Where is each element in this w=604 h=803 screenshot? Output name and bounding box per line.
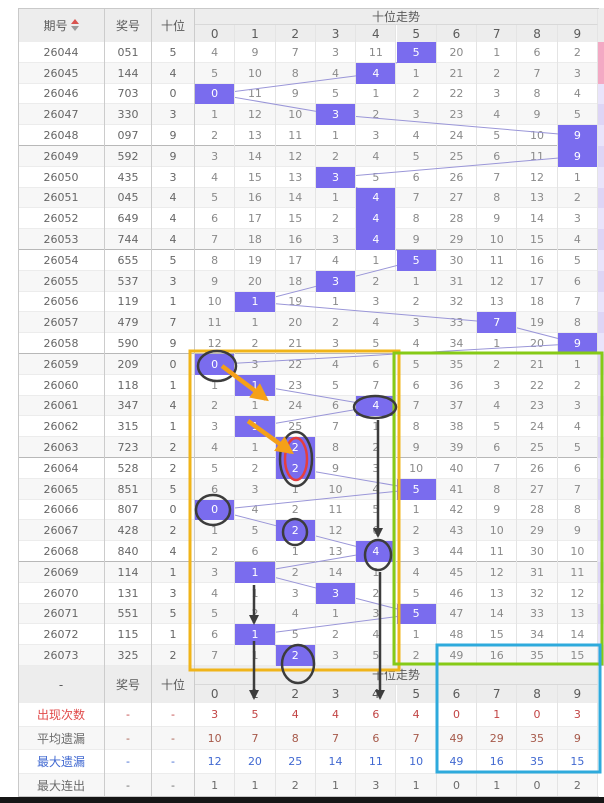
tens-cell: 0 [152, 354, 195, 375]
table-edge-sliver [598, 167, 604, 188]
miss-cell-5: 2 [397, 292, 437, 313]
period-cell: 26056 [18, 292, 105, 313]
miss-cell-6: 39 [437, 437, 477, 458]
miss-cell-1: 2 [235, 333, 275, 354]
miss-cell-8: 10 [517, 125, 557, 146]
miss-cell-3: 1 [316, 292, 356, 313]
miss-cell-4: 7 [356, 375, 396, 396]
table-edge-sliver [598, 146, 604, 167]
miss-cell-7: 12 [477, 271, 517, 292]
miss-cell-3: 3 [316, 229, 356, 250]
prize-cell: 144 [105, 63, 152, 84]
digit-header-7: 7 [477, 25, 517, 42]
table-edge-sliver [598, 125, 604, 146]
miss-cell-5: 3 [397, 104, 437, 125]
table-edge-sliver [598, 583, 604, 604]
table-edge-sliver [598, 63, 604, 84]
miss-cell-9: 3 [558, 396, 598, 417]
miss-cell-2: 17 [276, 250, 316, 271]
miss-cell-6: 34 [437, 333, 477, 354]
miss-cell-1: 19 [235, 250, 275, 271]
hit-cell-4: 4 [356, 63, 396, 84]
sort-icon[interactable] [71, 19, 79, 31]
digit-header-2: 2 [276, 25, 316, 42]
miss-cell-6: 28 [437, 208, 477, 229]
digit-header-7: 7 [477, 685, 517, 704]
period-cell: 26072 [18, 624, 105, 645]
sort-asc-icon [71, 19, 79, 24]
summary-label: 最大连出 [18, 774, 105, 798]
tens-cell: 3 [152, 104, 195, 125]
miss-cell-8: 14 [517, 208, 557, 229]
digit-header-0: 0 [195, 25, 235, 42]
tens-cell: 3 [152, 271, 195, 292]
trend-row-26053: 260537444718163492910154 [18, 229, 598, 250]
miss-cell-9: 6 [558, 458, 598, 479]
miss-cell-3: 1 [316, 188, 356, 209]
prize-cell: 655 [105, 250, 152, 271]
hit-cell-3: 3 [316, 167, 356, 188]
hit-cell-9: 9 [558, 125, 598, 146]
miss-cell-1: 2 [235, 458, 275, 479]
miss-cell-1: 3 [235, 479, 275, 500]
miss-cell-9: 11 [558, 562, 598, 583]
prize-cell: 315 [105, 416, 152, 437]
miss-cell-8: 7 [517, 63, 557, 84]
hit-cell-5: 5 [397, 250, 437, 271]
period-cell: 26069 [18, 562, 105, 583]
summary-value-7: 1 [477, 774, 517, 798]
miss-cell-8: 9 [517, 104, 557, 125]
miss-cell-9: 9 [558, 520, 598, 541]
table-edge-sliver [598, 500, 604, 521]
miss-cell-2: 21 [276, 333, 316, 354]
miss-cell-0: 4 [195, 437, 235, 458]
miss-cell-6: 46 [437, 583, 477, 604]
table-edge-sliver [598, 645, 604, 666]
table-edge-sliver [598, 42, 604, 63]
miss-cell-3: 4 [316, 250, 356, 271]
tens-cell: 4 [152, 396, 195, 417]
period-cell: 26044 [18, 42, 105, 63]
hit-cell-2: 2 [276, 645, 316, 666]
miss-cell-1: 9 [235, 42, 275, 63]
miss-cell-5: 1 [397, 63, 437, 84]
miss-cell-4: 1 [356, 562, 396, 583]
miss-cell-6: 27 [437, 188, 477, 209]
miss-cell-1: 11 [235, 84, 275, 105]
tens-cell: 2 [152, 458, 195, 479]
table-edge-sliver [598, 624, 604, 645]
summary-value-9: 3 [558, 703, 598, 727]
miss-cell-8: 28 [517, 500, 557, 521]
period-header-label: 期号 [43, 17, 67, 34]
miss-cell-6: 32 [437, 292, 477, 313]
miss-cell-7: 6 [477, 437, 517, 458]
miss-cell-3: 5 [316, 375, 356, 396]
hit-cell-2: 2 [276, 458, 316, 479]
miss-cell-2: 2 [276, 562, 316, 583]
miss-cell-5: 6 [397, 167, 437, 188]
table-edge-sliver-header [598, 8, 604, 42]
period-cell: 26046 [18, 84, 105, 105]
miss-cell-8: 25 [517, 437, 557, 458]
miss-cell-8: 33 [517, 604, 557, 625]
miss-cell-8: 12 [517, 167, 557, 188]
miss-cell-0: 1 [195, 520, 235, 541]
hit-cell-1: 1 [235, 416, 275, 437]
prize-header: 奖号 [105, 8, 152, 42]
miss-cell-0: 4 [195, 42, 235, 63]
prize-cell: 537 [105, 271, 152, 292]
miss-cell-6: 31 [437, 271, 477, 292]
miss-cell-8: 20 [517, 333, 557, 354]
summary-dash-tens: - [152, 727, 195, 751]
trend-row-26061: 2606134742124647374233 [18, 396, 598, 417]
miss-cell-0: 7 [195, 229, 235, 250]
prize-cell: 428 [105, 520, 152, 541]
miss-cell-2: 2 [276, 500, 316, 521]
summary-dash-prize: - [105, 727, 152, 751]
miss-cell-7: 8 [477, 188, 517, 209]
hit-cell-1: 1 [235, 624, 275, 645]
tens-cell: 1 [152, 416, 195, 437]
table-edge-sliver [598, 292, 604, 313]
miss-cell-7: 9 [477, 208, 517, 229]
miss-cell-8: 22 [517, 375, 557, 396]
miss-cell-6: 38 [437, 416, 477, 437]
miss-cell-8: 15 [517, 229, 557, 250]
miss-cell-4: 2 [356, 583, 396, 604]
miss-cell-5: 2 [397, 645, 437, 666]
miss-cell-2: 16 [276, 229, 316, 250]
miss-cell-4: 11 [356, 42, 396, 63]
trend-row-26070: 26070131341332546133212 [18, 583, 598, 604]
miss-cell-5: 3 [397, 541, 437, 562]
digit-header-0: 0 [195, 685, 235, 704]
miss-cell-2: 23 [276, 375, 316, 396]
miss-cell-3: 1 [316, 125, 356, 146]
hit-cell-9: 9 [558, 146, 598, 167]
miss-cell-0: 3 [195, 416, 235, 437]
prize-cell: 840 [105, 541, 152, 562]
miss-cell-1: 14 [235, 146, 275, 167]
miss-cell-4: 3 [356, 292, 396, 313]
miss-cell-2: 10 [276, 104, 316, 125]
tens-cell: 1 [152, 624, 195, 645]
miss-cell-1: 6 [235, 541, 275, 562]
miss-cell-0: 1 [195, 375, 235, 396]
hit-cell-5: 5 [397, 604, 437, 625]
summary-value-7: 29 [477, 727, 517, 751]
miss-cell-3: 3 [316, 645, 356, 666]
trend-row-26069: 260691141312141445123111 [18, 562, 598, 583]
miss-cell-4: 4 [356, 479, 396, 500]
miss-cell-9: 3 [558, 208, 598, 229]
trend-row-26066: 2606680700421151429288 [18, 500, 598, 521]
miss-cell-1: 10 [235, 63, 275, 84]
miss-cell-8: 27 [517, 479, 557, 500]
miss-cell-2: 14 [276, 188, 316, 209]
miss-cell-8: 31 [517, 562, 557, 583]
summary-value-2: 8 [276, 727, 316, 751]
miss-cell-5: 8 [397, 416, 437, 437]
miss-cell-4: 5 [356, 500, 396, 521]
miss-cell-0: 2 [195, 541, 235, 562]
summary-value-3: 4 [316, 703, 356, 727]
digit-header-6: 6 [437, 685, 477, 704]
summary-value-9: 9 [558, 727, 598, 751]
miss-cell-7: 5 [477, 125, 517, 146]
miss-cell-9: 10 [558, 541, 598, 562]
summary-value-4: 3 [356, 774, 396, 798]
miss-cell-5: 4 [397, 333, 437, 354]
period-cell: 26059 [18, 354, 105, 375]
miss-cell-8: 17 [517, 271, 557, 292]
hit-cell-0: 0 [195, 84, 235, 105]
miss-cell-1: 1 [235, 312, 275, 333]
miss-cell-5: 7 [397, 396, 437, 417]
hit-cell-5: 5 [397, 479, 437, 500]
digit-header-8: 8 [517, 685, 557, 704]
bottom-bar [0, 797, 604, 803]
hit-cell-4: 4 [356, 541, 396, 562]
table-edge-sliver [598, 208, 604, 229]
miss-cell-7: 13 [477, 292, 517, 313]
miss-cell-1: 2 [235, 604, 275, 625]
tens-cell: 2 [152, 437, 195, 458]
miss-cell-3: 9 [316, 458, 356, 479]
tens-cell: 5 [152, 479, 195, 500]
miss-cell-6: 36 [437, 375, 477, 396]
prize-cell: 435 [105, 167, 152, 188]
miss-cell-8: 13 [517, 188, 557, 209]
miss-cell-6: 37 [437, 396, 477, 417]
table-edge-sliver [598, 354, 604, 375]
miss-cell-9: 8 [558, 312, 598, 333]
trend-row-26059: 2605920900322465352211 [18, 354, 598, 375]
miss-cell-4: 4 [356, 146, 396, 167]
trend-row-26073: 26073325271235249163515 [18, 645, 598, 666]
miss-cell-9: 15 [558, 645, 598, 666]
miss-cell-9: 2 [558, 375, 598, 396]
period-cell: 26065 [18, 479, 105, 500]
digit-header-2: 2 [276, 685, 316, 704]
miss-cell-4: 4 [356, 312, 396, 333]
miss-cell-2: 13 [276, 167, 316, 188]
trend-row-26056: 260561191101191323213187 [18, 292, 598, 313]
summary-row-4: 最大连出--1121310102 [18, 774, 598, 798]
summary-value-1: 5 [235, 703, 275, 727]
period-cell: 26071 [18, 604, 105, 625]
prize-cell: 347 [105, 396, 152, 417]
summary-corner-label: - [59, 678, 63, 692]
hit-cell-3: 3 [316, 271, 356, 292]
period-header[interactable]: 期号 [18, 8, 105, 42]
summary-value-8: 35 [517, 727, 557, 751]
summary-value-7: 1 [477, 703, 517, 727]
period-cell: 26050 [18, 167, 105, 188]
miss-cell-9: 2 [558, 188, 598, 209]
miss-cell-5: 10 [397, 458, 437, 479]
tens-cell: 3 [152, 167, 195, 188]
trend-row-26054: 260546555819174153011165 [18, 250, 598, 271]
miss-cell-0: 11 [195, 312, 235, 333]
table-edge-sliver [598, 375, 604, 396]
trend-row-26048: 26048097921311134245109 [18, 125, 598, 146]
miss-cell-4: 5 [356, 167, 396, 188]
summary-value-2: 4 [276, 703, 316, 727]
prize-cell: 528 [105, 458, 152, 479]
miss-cell-7: 16 [477, 645, 517, 666]
period-cell: 26054 [18, 250, 105, 271]
summary-dash-tens: - [152, 703, 195, 727]
table-edge-sliver [598, 84, 604, 105]
summary-label: 最大遗漏 [18, 750, 105, 774]
hit-cell-0: 0 [195, 354, 235, 375]
miss-cell-9: 3 [558, 63, 598, 84]
hit-cell-1: 1 [235, 375, 275, 396]
summary-value-2: 2 [276, 774, 316, 798]
miss-cell-3: 4 [316, 63, 356, 84]
period-cell: 26060 [18, 375, 105, 396]
miss-cell-6: 20 [437, 42, 477, 63]
prize-cell: 649 [105, 208, 152, 229]
miss-cell-6: 26 [437, 167, 477, 188]
miss-cell-5: 2 [397, 84, 437, 105]
summary-value-1: 20 [235, 750, 275, 774]
table-edge-sliver [598, 458, 604, 479]
miss-cell-0: 8 [195, 250, 235, 271]
trend-row-26063: 260637232412829396255 [18, 437, 598, 458]
miss-cell-0: 4 [195, 167, 235, 188]
prize-cell: 118 [105, 375, 152, 396]
miss-cell-6: 30 [437, 250, 477, 271]
summary-row-2: 平均遗漏--10787674929359 [18, 727, 598, 751]
summary-value-0: 12 [195, 750, 235, 774]
miss-cell-3: 4 [316, 354, 356, 375]
miss-cell-0: 1 [195, 104, 235, 125]
miss-cell-7: 7 [477, 458, 517, 479]
miss-cell-7: 3 [477, 375, 517, 396]
tens-cell: 5 [152, 604, 195, 625]
miss-cell-3: 6 [316, 396, 356, 417]
trend-row-26068: 260688404261134344113010 [18, 541, 598, 562]
miss-cell-3: 8 [316, 437, 356, 458]
miss-cell-2: 7 [276, 42, 316, 63]
miss-cell-7: 12 [477, 562, 517, 583]
miss-cell-5: 9 [397, 437, 437, 458]
miss-cell-9: 2 [558, 42, 598, 63]
miss-cell-6: 24 [437, 125, 477, 146]
miss-cell-4: 5 [356, 333, 396, 354]
summary-value-6: 49 [437, 727, 477, 751]
trend-row-26046: 260467030011951222384 [18, 84, 598, 105]
miss-cell-8: 8 [517, 84, 557, 105]
digit-header-9: 9 [558, 25, 598, 42]
miss-cell-1: 16 [235, 188, 275, 209]
miss-cell-8: 11 [517, 146, 557, 167]
period-cell: 26051 [18, 188, 105, 209]
trend-header: 十位走势 [195, 666, 598, 685]
trend-row-26067: 26067428215212624310299 [18, 520, 598, 541]
tens-cell: 5 [152, 250, 195, 271]
miss-cell-5: 5 [397, 354, 437, 375]
miss-cell-9: 5 [558, 250, 598, 271]
summary-value-9: 15 [558, 750, 598, 774]
miss-cell-3: 3 [316, 333, 356, 354]
miss-cell-4: 3 [356, 125, 396, 146]
hit-cell-9: 9 [558, 333, 598, 354]
summary-dash-tens: - [152, 750, 195, 774]
miss-cell-5: 8 [397, 208, 437, 229]
tens-cell: 2 [152, 645, 195, 666]
miss-cell-0: 5 [195, 63, 235, 84]
miss-cell-5: 1 [397, 624, 437, 645]
tens-header: 十位 [152, 666, 195, 703]
miss-cell-5: 6 [397, 375, 437, 396]
period-cell: 26053 [18, 229, 105, 250]
miss-cell-4: 1 [356, 250, 396, 271]
period-cell: 26052 [18, 208, 105, 229]
period-cell: 26055 [18, 271, 105, 292]
summary-value-5: 7 [397, 727, 437, 751]
summary-value-8: 0 [517, 774, 557, 798]
tens-cell: 4 [152, 229, 195, 250]
table-edge-sliver [598, 188, 604, 209]
miss-cell-1: 1 [235, 645, 275, 666]
summary-value-0: 10 [195, 727, 235, 751]
miss-cell-4: 2 [356, 437, 396, 458]
miss-cell-1: 1 [235, 583, 275, 604]
miss-cell-4: 3 [356, 604, 396, 625]
summary-dash-tens: - [152, 774, 195, 798]
digit-header-4: 4 [356, 685, 396, 704]
hit-cell-2: 2 [276, 437, 316, 458]
miss-cell-4: 1 [356, 84, 396, 105]
miss-cell-0: 2 [195, 125, 235, 146]
prize-cell: 114 [105, 562, 152, 583]
trend-row-26064: 2606452825229310407266 [18, 458, 598, 479]
miss-cell-2: 4 [276, 604, 316, 625]
table-edge-sliver [598, 416, 604, 437]
miss-cell-0: 5 [195, 604, 235, 625]
tens-cell: 9 [152, 146, 195, 167]
tens-cell: 7 [152, 312, 195, 333]
miss-cell-3: 11 [316, 500, 356, 521]
period-cell: 26066 [18, 500, 105, 521]
prize-header: 奖号 [105, 666, 152, 703]
miss-cell-2: 11 [276, 125, 316, 146]
miss-cell-9: 14 [558, 624, 598, 645]
trend-row-26051: 26051045451614147278132 [18, 188, 598, 209]
hit-cell-4: 4 [356, 229, 396, 250]
digit-header-5: 5 [397, 685, 437, 704]
miss-cell-9: 5 [558, 437, 598, 458]
period-cell: 26048 [18, 125, 105, 146]
miss-cell-1: 4 [235, 500, 275, 521]
tens-cell: 0 [152, 84, 195, 105]
miss-cell-9: 12 [558, 583, 598, 604]
miss-cell-6: 43 [437, 520, 477, 541]
miss-cell-7: 1 [477, 333, 517, 354]
miss-cell-0: 10 [195, 292, 235, 313]
miss-cell-4: 4 [356, 624, 396, 645]
miss-cell-8: 21 [517, 354, 557, 375]
miss-cell-4: 6 [356, 354, 396, 375]
miss-cell-1: 18 [235, 229, 275, 250]
summary-value-6: 0 [437, 703, 477, 727]
